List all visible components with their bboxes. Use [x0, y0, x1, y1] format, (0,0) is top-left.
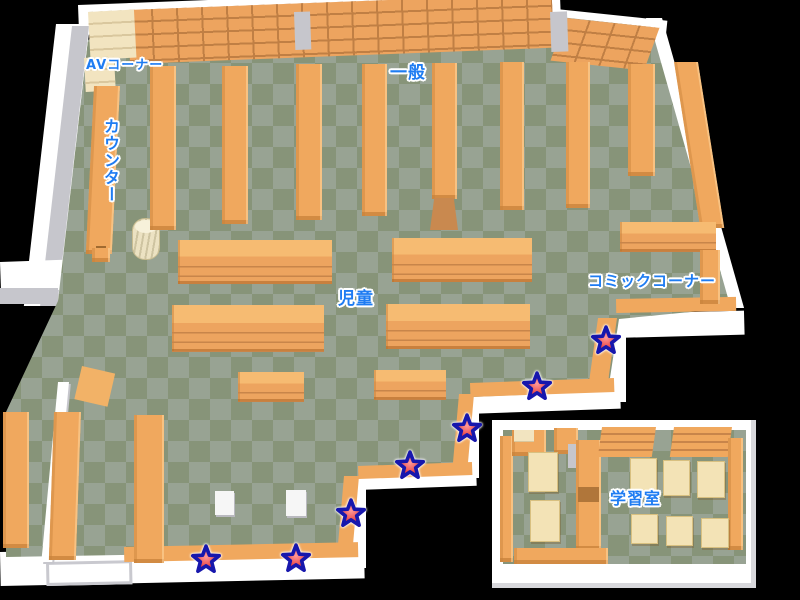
star-marker[interactable]: [280, 543, 312, 575]
label-counter: カウンター: [98, 118, 122, 238]
star-marker[interactable]: [521, 371, 553, 403]
star-marker[interactable]: [335, 498, 367, 530]
star-marker[interactable]: [590, 325, 622, 357]
label-av-corner: AVコーナー: [86, 54, 163, 73]
label-children: 児童: [338, 284, 374, 309]
label-study-room: 学習室: [610, 485, 661, 509]
library-map-canvas: AVコーナー カウンター 一般 児童 コミックコーナー 学習室: [0, 0, 800, 600]
label-comic-corner: コミックコーナー: [588, 270, 716, 291]
star-marker[interactable]: [394, 450, 426, 482]
star-layer: [0, 0, 800, 600]
star-marker[interactable]: [190, 544, 222, 576]
star-marker[interactable]: [451, 413, 483, 445]
label-general: 一般: [390, 58, 426, 83]
